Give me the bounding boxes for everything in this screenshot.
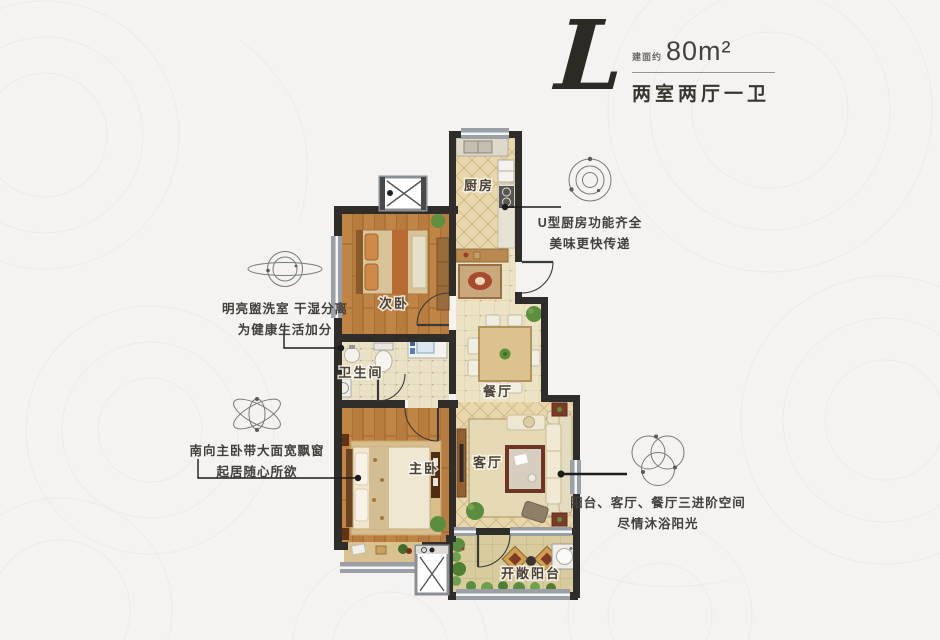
balcony-table <box>526 556 536 566</box>
area-prefix: 建面约 <box>632 50 662 63</box>
plan-header: L 建面约 80m² 两室两厅一卫 <box>550 10 775 106</box>
plant <box>466 502 484 520</box>
atom-ellipses-icon <box>225 392 289 436</box>
plan-letter: L <box>547 10 633 102</box>
note-text: 尽情沐浴阳光 <box>617 514 698 535</box>
header-divider <box>632 72 775 73</box>
floor-plan: 厨房 次卧 卫生间 餐厅 主卧 客厅 开敞阳台 <box>0 0 940 640</box>
note-text: 美味更快传递 <box>549 234 630 255</box>
kitchen-window <box>461 133 509 136</box>
toilet <box>374 343 393 350</box>
sunlight-note: 阳台、客厅、餐厅三进阶空间 尽情沐浴阳光 <box>548 434 768 535</box>
note-text: 明亮盥洗室 干湿分离 <box>222 299 348 320</box>
plant <box>430 516 446 532</box>
plant <box>431 214 445 228</box>
area-value: 80m² <box>666 36 732 67</box>
balcony-railing <box>456 594 570 597</box>
washroom-connector <box>338 345 344 351</box>
kitchen-note: U型厨房功能齐全 美味更快传递 <box>480 152 700 255</box>
bathroom-label: 卫生间 <box>338 365 383 380</box>
note-text: 南向主卧带大面宽飘窗 <box>189 441 324 462</box>
note-text: 为健康生活加分 <box>238 320 333 341</box>
plant <box>526 306 542 322</box>
triple-circles-icon <box>629 434 687 488</box>
layout-type: 两室两厅一卫 <box>632 79 775 106</box>
floorplan-page: { "header": { "plan_letter": "L", "area_… <box>0 0 940 640</box>
note-text: U型厨房功能齐全 <box>538 213 643 234</box>
equipment-platform-bottom <box>416 546 448 594</box>
note-text: 起居随心所欲 <box>216 462 297 483</box>
balcony-window <box>454 531 476 534</box>
equipment-platform-top <box>380 177 426 210</box>
orbit-circles-icon <box>243 244 327 294</box>
concentric-circles-icon <box>562 152 618 208</box>
wash-basin <box>345 348 360 363</box>
tv <box>460 444 464 482</box>
master-note: 南向主卧带大面宽飘窗 起居随心所欲 <box>147 392 367 483</box>
living-room-label: 客厅 <box>473 455 503 470</box>
balcony-label: 开敞阳台 <box>501 566 561 581</box>
note-text: 阳台、客厅、餐厅三进阶空间 <box>570 493 746 514</box>
dining-room-label: 餐厅 <box>482 384 513 399</box>
master-bedroom-label: 主卧 <box>409 461 439 476</box>
wardrobe <box>437 238 449 310</box>
washroom-note: 明亮盥洗室 干湿分离 为健康生活加分 <box>175 244 395 341</box>
